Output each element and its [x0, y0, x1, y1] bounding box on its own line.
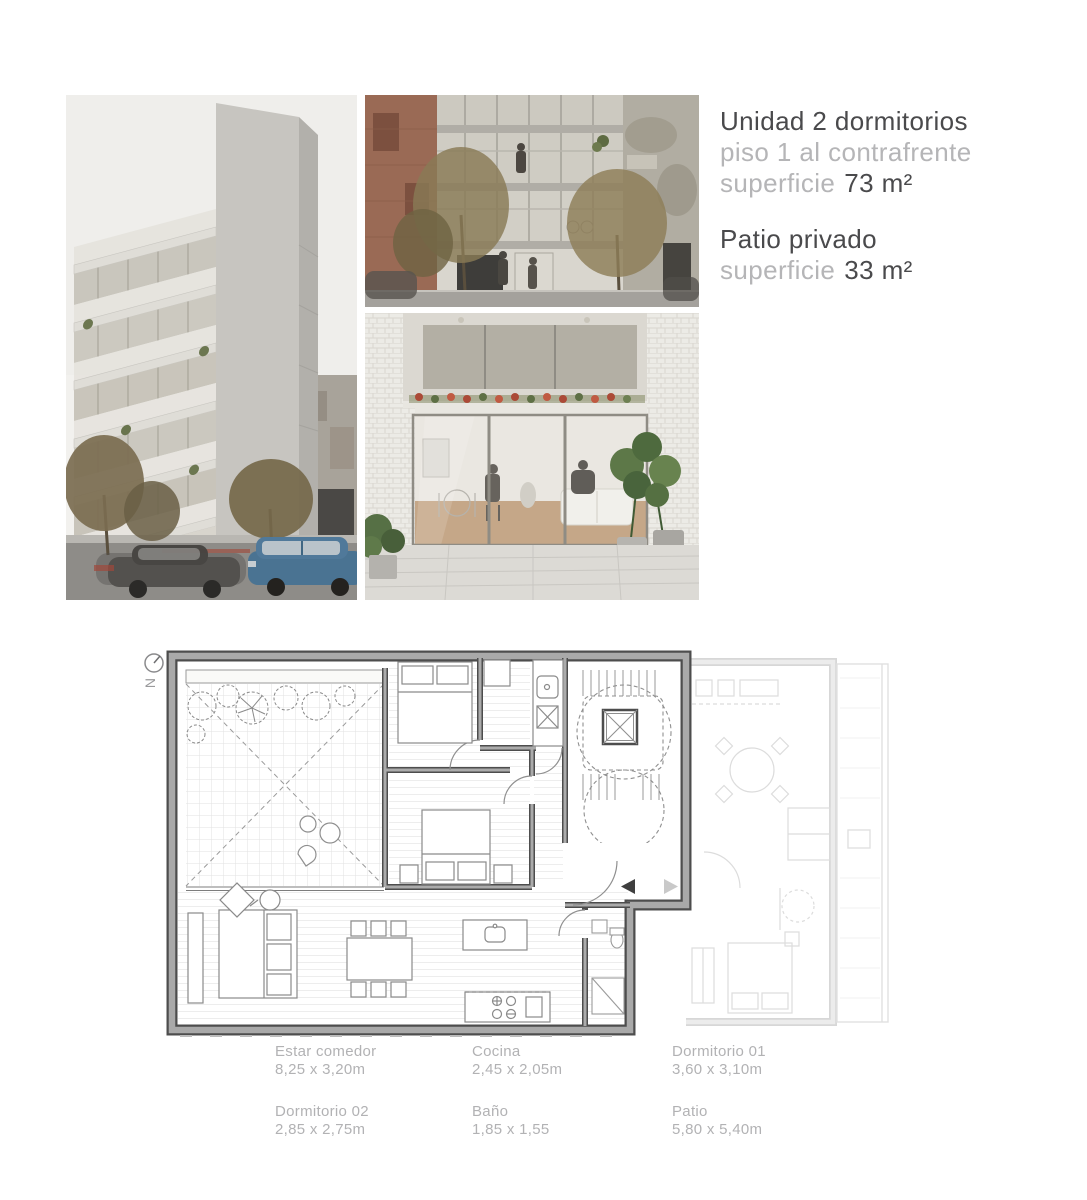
patio-title: Patio privado [720, 224, 1050, 255]
building-exterior-photo [66, 95, 357, 600]
patio-area-line: superficie33 m² [720, 255, 1050, 286]
patio-area-value: 33 m² [844, 255, 912, 285]
room-dims: 2,45 x 2,05m [472, 1061, 662, 1079]
unit-area-line: superficie73 m² [720, 168, 1050, 199]
unit-info-block: Unidad 2 dormitorios piso 1 al contrafre… [720, 106, 1050, 286]
building-exterior-render [66, 95, 357, 600]
room-dims: 3,60 x 3,10m [672, 1061, 862, 1079]
legend-item: Dormitorio 02 2,85 x 2,75m [275, 1103, 465, 1139]
room-dims: 8,25 x 3,20m [275, 1061, 465, 1079]
room-name: Patio [672, 1103, 862, 1121]
lobby-person [528, 257, 537, 289]
adjacent-unit-faded [686, 662, 888, 1022]
walking-person [498, 251, 508, 285]
stairwell [577, 670, 671, 850]
patio-photo [365, 313, 699, 600]
room-name: Cocina [472, 1043, 662, 1061]
room-dims: 1,85 x 1,55 [472, 1121, 662, 1139]
floor-plan-drawing [140, 648, 900, 1040]
kitchen-counter-bottom [465, 992, 550, 1022]
legend-column-3: Dormitorio 01 3,60 x 3,10m Patio 5,80 x … [672, 1043, 862, 1163]
unit-subtitle: piso 1 al contrafrente [720, 137, 1050, 168]
legend-item: Estar comedor 8,25 x 3,20m [275, 1043, 465, 1079]
legend-column-1: Estar comedor 8,25 x 3,20m Dormitorio 02… [275, 1043, 465, 1163]
floor-plan [140, 648, 900, 1040]
balcony-person [516, 143, 526, 173]
room-name: Baño [472, 1103, 662, 1121]
legend-item: Dormitorio 01 3,60 x 3,10m [672, 1043, 862, 1079]
street-level-facade-render [365, 95, 699, 307]
street-facade-photo [365, 95, 699, 307]
room-name: Dormitorio 01 [672, 1043, 862, 1061]
bed-dormitorio-02 [398, 662, 472, 743]
patio-courtyard-render [365, 313, 699, 600]
unit-area-label: superficie [720, 168, 835, 198]
patio-area-label: superficie [720, 255, 835, 285]
legend-item: Patio 5,80 x 5,40m [672, 1103, 862, 1139]
unit-title: Unidad 2 dormitorios [720, 106, 1050, 137]
room-name: Estar comedor [275, 1043, 465, 1061]
kitchen-island [463, 920, 527, 950]
legend-item: Cocina 2,45 x 2,05m [472, 1043, 662, 1079]
legend-column-2: Cocina 2,45 x 2,05m Baño 1,85 x 1,55 [472, 1043, 662, 1163]
room-name: Dormitorio 02 [275, 1103, 465, 1121]
dining-set [347, 921, 412, 997]
unit-area-value: 73 m² [844, 168, 912, 198]
entry-arrow-right [664, 879, 678, 894]
room-dims: 2,85 x 2,75m [275, 1121, 465, 1139]
room-dims: 5,80 x 5,40m [672, 1121, 862, 1139]
legend-item: Baño 1,85 x 1,55 [472, 1103, 662, 1139]
